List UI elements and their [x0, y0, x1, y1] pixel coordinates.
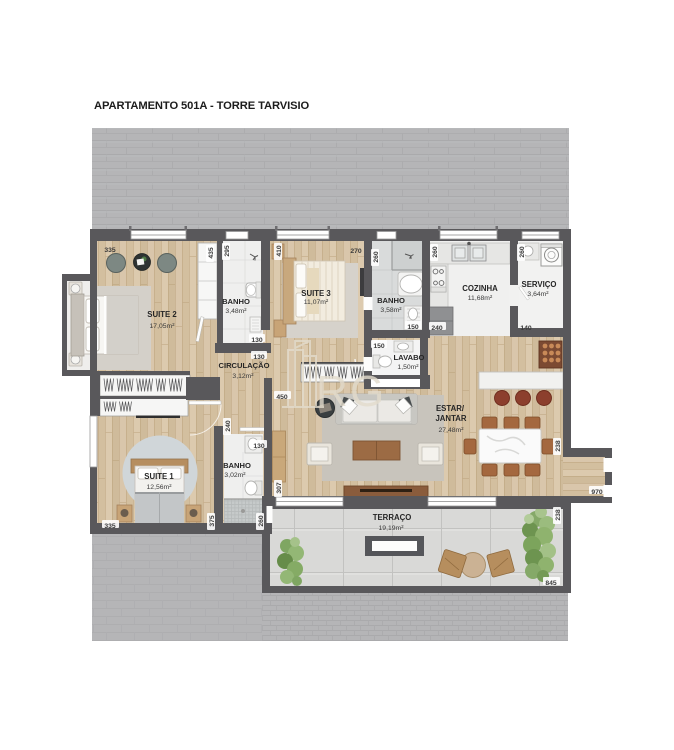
svg-text:1,50m²: 1,50m²	[397, 364, 419, 371]
svg-text:3,12m²: 3,12m²	[232, 373, 254, 380]
svg-text:335: 335	[104, 523, 116, 530]
svg-text:SUITE 1: SUITE 1	[144, 472, 174, 481]
svg-text:3,58m²: 3,58m²	[380, 307, 402, 314]
svg-text:COZINHA: COZINHA	[462, 284, 498, 293]
svg-text:JANTAR: JANTAR	[435, 414, 466, 423]
svg-text:845: 845	[545, 580, 557, 587]
svg-text:3,48m²: 3,48m²	[225, 308, 247, 315]
svg-text:BANHO: BANHO	[223, 461, 251, 470]
svg-text:435: 435	[208, 247, 215, 259]
svg-text:R: R	[316, 367, 348, 416]
svg-text:970: 970	[591, 489, 603, 496]
svg-text:307: 307	[276, 482, 283, 494]
svg-text:335: 335	[104, 247, 116, 254]
svg-text:260: 260	[519, 246, 526, 258]
svg-text:140: 140	[520, 325, 532, 332]
svg-text:G: G	[350, 367, 384, 416]
svg-text:SERVIÇO: SERVIÇO	[522, 280, 557, 289]
svg-text:ESTAR/: ESTAR/	[436, 404, 465, 413]
svg-text:CIRCULAÇÃO: CIRCULAÇÃO	[218, 361, 269, 370]
svg-text:SUITE 3: SUITE 3	[301, 289, 331, 298]
svg-text:240: 240	[225, 420, 232, 432]
svg-text:450: 450	[276, 394, 288, 401]
svg-text:BANHO: BANHO	[377, 296, 405, 305]
svg-text:130: 130	[253, 443, 265, 450]
svg-text:APARTAMENTO 501A - TORRE TARVI: APARTAMENTO 501A - TORRE TARVISIO	[94, 100, 309, 112]
svg-text:LAVABO: LAVABO	[394, 353, 425, 362]
svg-text:TERRAÇO: TERRAÇO	[373, 513, 412, 522]
svg-text:240: 240	[431, 325, 443, 332]
svg-text:17,05m²: 17,05m²	[150, 323, 176, 330]
svg-text:SUITE 2: SUITE 2	[147, 310, 177, 319]
svg-text:130: 130	[251, 337, 263, 344]
svg-text:11,07m²: 11,07m²	[304, 299, 329, 306]
svg-text:11,68m²: 11,68m²	[468, 295, 493, 302]
svg-text:238: 238	[555, 509, 562, 521]
svg-text:260: 260	[432, 246, 439, 258]
svg-text:150: 150	[373, 343, 385, 350]
svg-text:3,02m²: 3,02m²	[224, 472, 246, 479]
svg-text:260: 260	[373, 251, 380, 263]
svg-text:19,19m²: 19,19m²	[379, 525, 405, 532]
svg-text:27,48m²: 27,48m²	[439, 427, 465, 434]
svg-text:3,64m²: 3,64m²	[527, 291, 549, 298]
svg-text:295: 295	[224, 245, 231, 257]
svg-text:150: 150	[407, 324, 419, 331]
svg-text:375: 375	[209, 515, 216, 527]
svg-text:260: 260	[258, 515, 265, 527]
svg-text:12,56m²: 12,56m²	[147, 484, 173, 491]
svg-text:270: 270	[350, 248, 362, 255]
svg-text:410: 410	[276, 245, 283, 257]
svg-text:238: 238	[555, 440, 562, 452]
svg-text:BANHO: BANHO	[222, 297, 250, 306]
svg-text:130: 130	[253, 354, 265, 361]
